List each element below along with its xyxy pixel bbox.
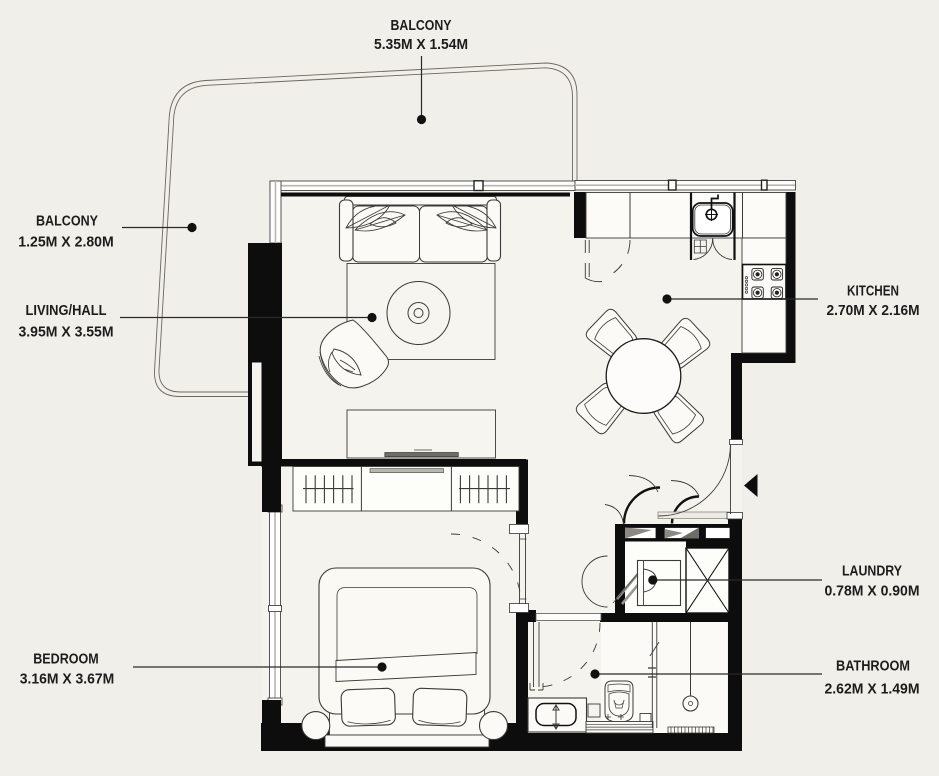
svg-text:2.62M X 1.49M: 2.62M X 1.49M [825,682,920,698]
svg-text:BALCONY: BALCONY [36,214,98,230]
svg-text:LAUNDRY: LAUNDRY [842,564,902,580]
svg-text:BEDROOM: BEDROOM [33,652,99,668]
svg-text:1.25M X 2.80M: 1.25M X 2.80M [18,235,114,251]
svg-text:KITCHEN: KITCHEN [847,284,899,300]
svg-text:BATHROOM: BATHROOM [836,659,910,675]
svg-text:5.35M X 1.54M: 5.35M X 1.54M [374,37,468,53]
svg-text:2.70M X 2.16M: 2.70M X 2.16M [827,303,920,319]
svg-text:3.16M X 3.67M: 3.16M X 3.67M [20,672,115,688]
svg-text:LIVING/HALL: LIVING/HALL [26,303,107,319]
svg-text:0.78M X 0.90M: 0.78M X 0.90M [825,584,920,600]
svg-text:BALCONY: BALCONY [391,18,452,34]
svg-text:3.95M X 3.55M: 3.95M X 3.55M [19,325,114,341]
